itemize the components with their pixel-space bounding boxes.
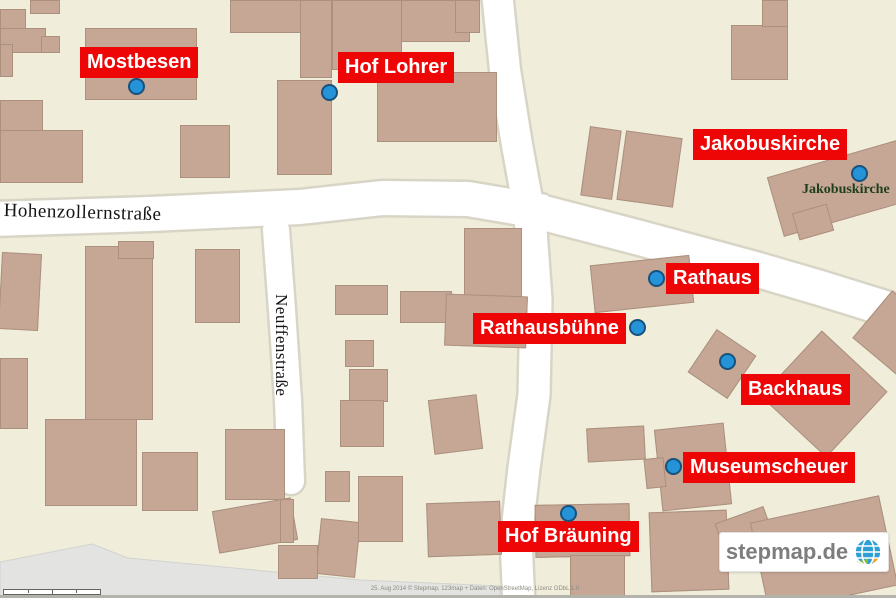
building (41, 36, 60, 53)
building (0, 100, 43, 132)
marker-label-jakobuskirche[interactable]: Jakobuskirche (693, 129, 847, 160)
building (340, 400, 384, 447)
marker-dot-hof-lohrer[interactable] (321, 84, 338, 101)
marker-dot-mostbesen[interactable] (128, 78, 145, 95)
building (0, 252, 42, 331)
stepmap-logo-text: stepmap.de (726, 539, 848, 565)
building (278, 545, 318, 579)
marker-dot-rathaus[interactable] (648, 270, 665, 287)
marker-label-rathaus[interactable]: Rathaus (666, 263, 759, 294)
globe-icon (854, 538, 882, 566)
building (280, 499, 294, 543)
building (335, 285, 388, 315)
building (142, 452, 198, 511)
scale-tick (76, 590, 77, 593)
building (580, 126, 621, 200)
marker-dot-rathausbuehne[interactable] (629, 319, 646, 336)
scale-tick (52, 590, 53, 594)
building (45, 419, 137, 506)
marker-dot-backhaus[interactable] (719, 353, 736, 370)
building (616, 130, 682, 207)
building (230, 0, 302, 33)
building (0, 130, 83, 183)
marker-label-backhaus[interactable]: Backhaus (741, 374, 850, 405)
marker-label-museumscheuer[interactable]: Museumscheuer (683, 452, 855, 483)
building (0, 44, 13, 77)
building (426, 501, 502, 558)
building (358, 476, 403, 542)
building (300, 0, 332, 78)
building (428, 394, 483, 455)
marker-label-mostbesen[interactable]: Mostbesen (80, 47, 198, 78)
scale-bar (3, 589, 101, 595)
marker-dot-hof-braeuning[interactable] (560, 505, 577, 522)
building (85, 246, 153, 420)
building (349, 369, 388, 402)
building (762, 0, 788, 27)
building (225, 429, 285, 500)
building (731, 25, 788, 80)
building (643, 457, 666, 489)
building (325, 471, 350, 502)
church-map-label: Jakobuskirche (802, 182, 890, 198)
building (0, 358, 28, 429)
marker-dot-museumscheuer[interactable] (665, 458, 682, 475)
marker-dot-jakobuskirche[interactable] (851, 165, 868, 182)
stepmap-logo[interactable]: stepmap.de (719, 532, 889, 572)
building (464, 228, 522, 300)
marker-label-hof-lohrer[interactable]: Hof Lohrer (338, 52, 454, 83)
building (345, 340, 374, 367)
scale-tick (28, 590, 29, 593)
building (455, 0, 480, 33)
map-attribution: 25. Aug 2014 © Stepmap, 123map + Daten: … (330, 585, 620, 593)
marker-label-hof-braeuning[interactable]: Hof Bräuning (498, 521, 639, 552)
building (195, 249, 240, 323)
street-name-neuffenstrasse: Neuffenstraße (271, 294, 291, 396)
map-canvas: Jakobuskirche 25. Aug 2014 © Stepmap, 12… (0, 0, 896, 598)
building (180, 125, 230, 178)
building (118, 241, 154, 259)
building (315, 518, 361, 578)
building (586, 426, 646, 463)
marker-label-rathausbuehne[interactable]: Rathausbühne (473, 313, 626, 344)
street-name-hohenzollernstrasse: Hohenzollernstraße (3, 200, 161, 226)
building (30, 0, 60, 14)
